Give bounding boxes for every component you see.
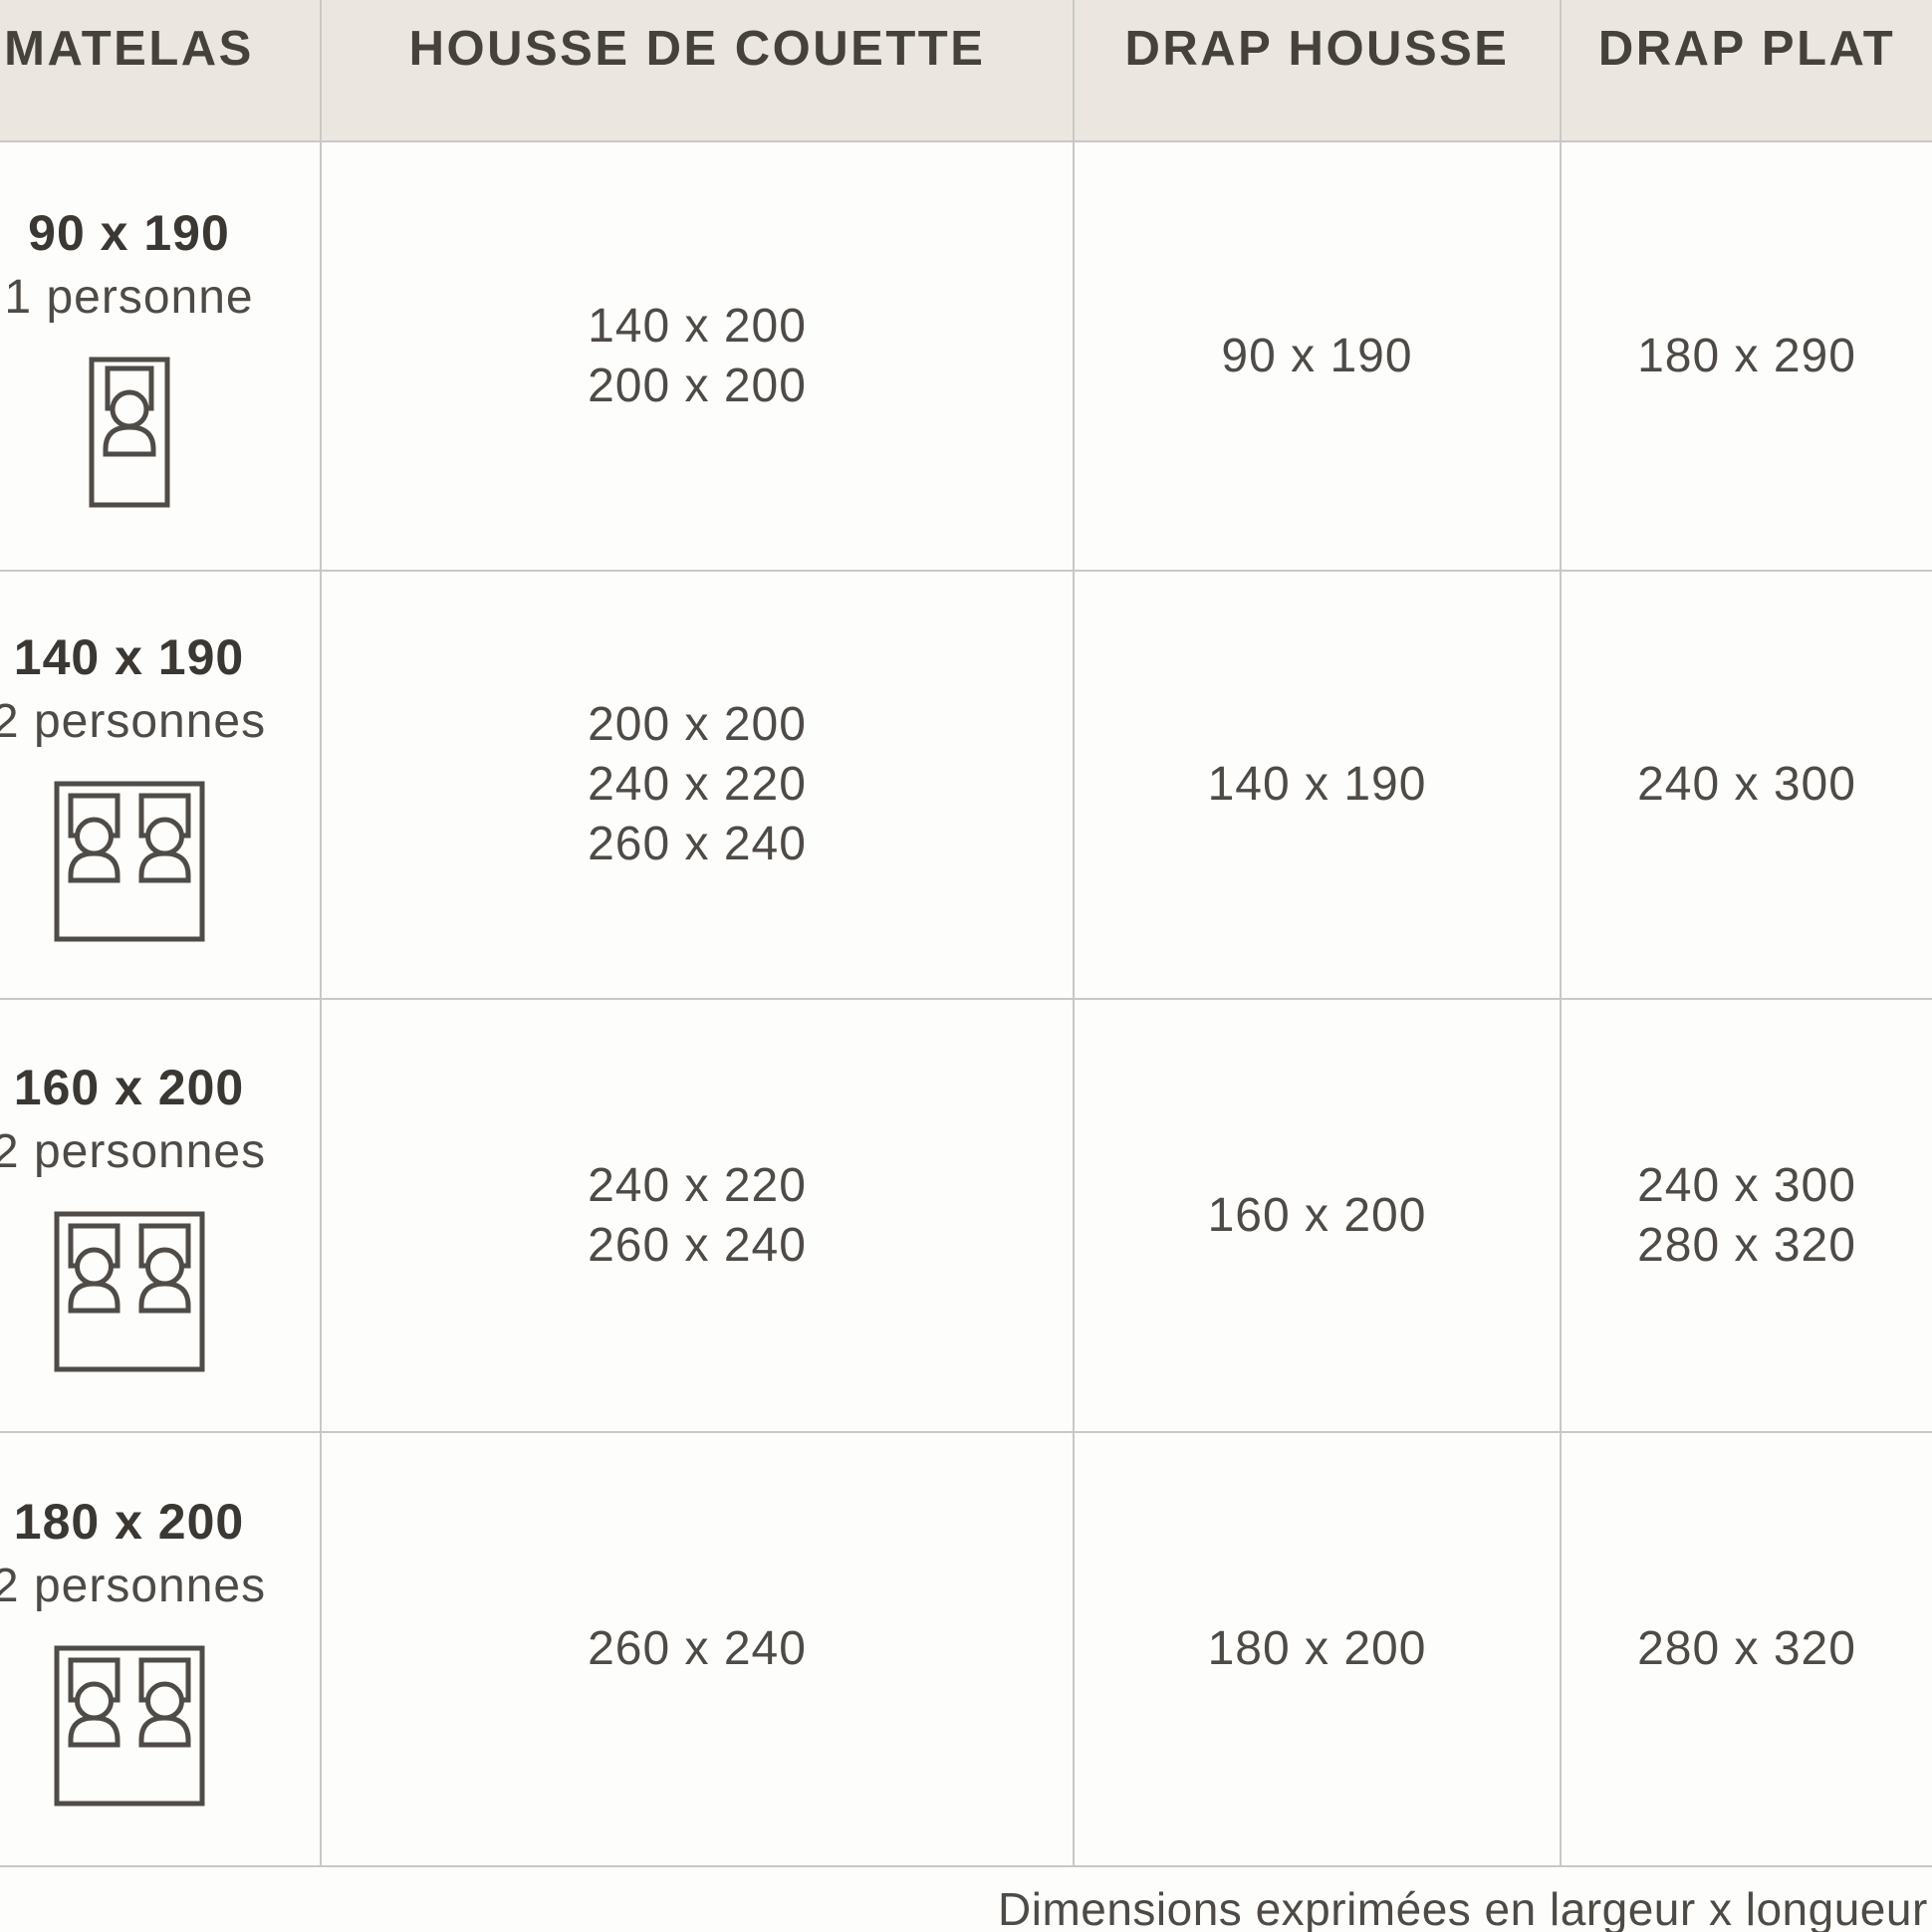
- size-value: 200 x 200: [588, 695, 807, 755]
- mattress-size: 140 x 190: [14, 628, 244, 686]
- drap-plat-cell-row1: 180 x 290: [1562, 142, 1932, 572]
- mattress-capacity: 2 personnes: [0, 1124, 266, 1179]
- size-value: 260 x 240: [588, 1216, 807, 1276]
- mattress-capacity: 2 personnes: [0, 694, 266, 749]
- size-value: 200 x 200: [588, 357, 807, 416]
- column-header-label: MATELAS: [4, 21, 254, 77]
- column-header-label: HOUSSE DE COUETTE: [409, 21, 986, 77]
- size-value: 260 x 240: [588, 1619, 807, 1679]
- column-header-label: DRAP HOUSSE: [1124, 21, 1509, 77]
- size-value: 140 x 190: [1208, 755, 1427, 815]
- mattress-size: 160 x 200: [14, 1059, 244, 1116]
- size-value: 140 x 200: [588, 297, 807, 357]
- mattress-size: 90 x 190: [28, 204, 230, 262]
- drap-housse-cell-row1: 90 x 190: [1075, 142, 1562, 572]
- size-table: MATELAS HOUSSE DE COUETTE DRAP HOUSSE DR…: [0, 0, 1932, 1867]
- matelas-cell-row2: 140 x 190 2 personnes: [0, 572, 322, 1000]
- housse-de-couette-cell-row2: 200 x 200 240 x 220 260 x 240: [322, 572, 1075, 1000]
- size-value: 180 x 200: [1208, 1619, 1427, 1679]
- matelas-cell-row4: 180 x 200 2 personnes: [0, 1433, 322, 1867]
- drap-plat-cell-row2: 240 x 300: [1562, 572, 1932, 1000]
- size-value: 240 x 220: [588, 1156, 807, 1216]
- size-value: 240 x 300: [1637, 1156, 1856, 1216]
- double-bed-icon: [54, 1211, 205, 1372]
- size-value: 160 x 200: [1208, 1186, 1427, 1246]
- size-value: 180 x 290: [1637, 327, 1856, 386]
- drap-plat-cell-row3: 240 x 300 280 x 320: [1562, 1000, 1932, 1433]
- size-value: 280 x 320: [1637, 1619, 1856, 1679]
- column-header-drap-plat: DRAP PLAT: [1562, 0, 1932, 142]
- size-value: 240 x 300: [1637, 755, 1856, 815]
- double-bed-icon: [54, 781, 205, 942]
- double-bed-icon: [54, 1645, 205, 1807]
- single-bed-icon: [89, 357, 170, 508]
- housse-de-couette-cell-row3: 240 x 220 260 x 240: [322, 1000, 1075, 1433]
- drap-plat-cell-row4: 280 x 320: [1562, 1433, 1932, 1867]
- drap-housse-cell-row2: 140 x 190: [1075, 572, 1562, 1000]
- size-value: 260 x 240: [588, 815, 807, 874]
- matelas-cell-row1: 90 x 190 1 personne: [0, 142, 322, 572]
- column-header-drap-housse: DRAP HOUSSE: [1075, 0, 1562, 142]
- bedding-size-guide: MATELAS HOUSSE DE COUETTE DRAP HOUSSE DR…: [0, 0, 1932, 1932]
- column-header-housse-de-couette: HOUSSE DE COUETTE: [322, 0, 1075, 142]
- size-value: 240 x 220: [588, 755, 807, 815]
- housse-de-couette-cell-row1: 140 x 200 200 x 200: [322, 142, 1075, 572]
- mattress-size: 180 x 200: [14, 1493, 244, 1551]
- mattress-capacity: 1 personne: [4, 270, 253, 325]
- housse-de-couette-cell-row4: 260 x 240: [322, 1433, 1075, 1867]
- drap-housse-cell-row3: 160 x 200: [1075, 1000, 1562, 1433]
- column-header-matelas: MATELAS: [0, 0, 322, 142]
- size-value: 90 x 190: [1221, 327, 1412, 386]
- dimensions-note: Dimensions exprimées en largeur x longue…: [998, 1882, 1932, 1932]
- column-header-label: DRAP PLAT: [1598, 21, 1895, 77]
- matelas-cell-row3: 160 x 200 2 personnes: [0, 1000, 322, 1433]
- drap-housse-cell-row4: 180 x 200: [1075, 1433, 1562, 1867]
- mattress-capacity: 2 personnes: [0, 1559, 266, 1613]
- size-value: 280 x 320: [1637, 1216, 1856, 1276]
